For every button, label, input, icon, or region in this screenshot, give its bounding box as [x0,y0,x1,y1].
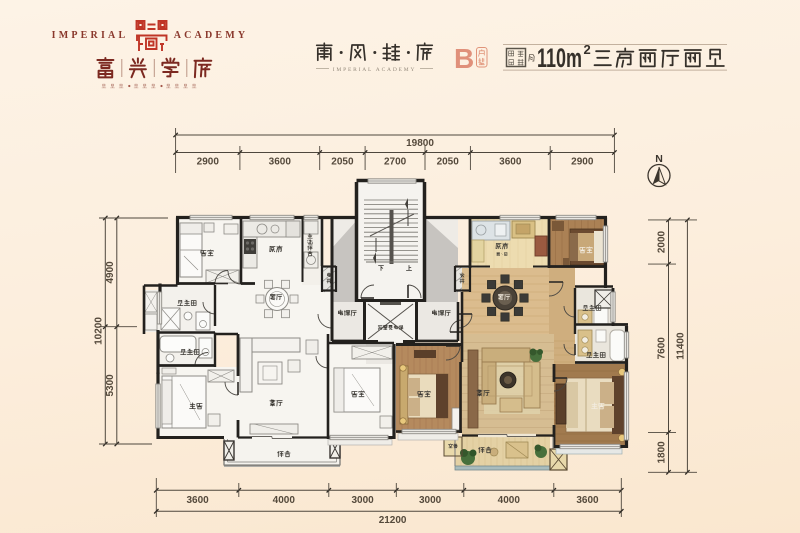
svg-text:IMPERIAL ACADEMY: IMPERIAL ACADEMY [333,67,416,73]
svg-text:2: 2 [584,42,591,57]
svg-text:2700: 2700 [384,157,407,168]
svg-text:21200: 21200 [379,515,407,526]
svg-text:1800: 1800 [657,441,668,464]
svg-text:110m: 110m [537,43,582,73]
svg-text:5300: 5300 [105,374,116,397]
svg-text:ACADEMY: ACADEMY [174,30,249,41]
svg-text:2000: 2000 [657,230,668,253]
svg-text:2050: 2050 [437,157,460,168]
svg-text:4000: 4000 [498,495,521,506]
svg-text:B: B [454,43,474,74]
svg-text:2050: 2050 [331,157,354,168]
svg-text:3600: 3600 [186,495,209,506]
svg-text:3000: 3000 [419,495,442,506]
svg-text:19800: 19800 [406,138,434,149]
svg-text:11400: 11400 [675,332,686,360]
svg-text:2900: 2900 [571,157,594,168]
svg-text:7600: 7600 [657,337,668,360]
svg-text:2900: 2900 [197,157,220,168]
svg-text:3000: 3000 [351,495,374,506]
svg-text:4900: 4900 [105,261,116,284]
svg-text:N: N [655,153,663,165]
svg-text:10200: 10200 [94,317,105,345]
svg-text:3600: 3600 [269,157,292,168]
svg-text:IMPERIAL: IMPERIAL [52,30,129,41]
svg-text:4000: 4000 [273,495,296,506]
svg-text:3600: 3600 [499,157,522,168]
svg-text:3600: 3600 [576,495,599,506]
